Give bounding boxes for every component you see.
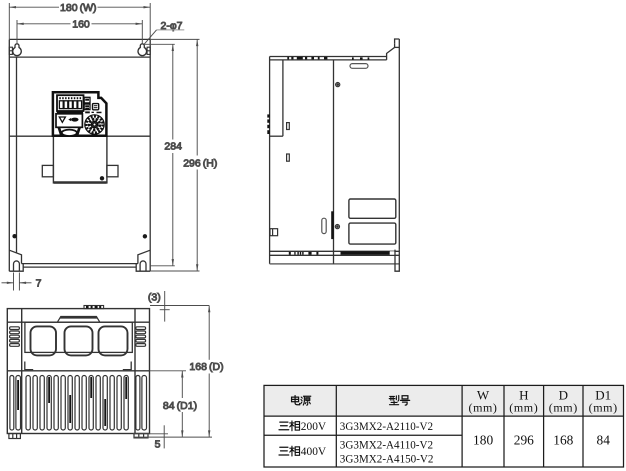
svg-text:7: 7 <box>36 277 42 289</box>
svg-text:5: 5 <box>155 439 161 451</box>
svg-text:284: 284 <box>164 141 182 153</box>
svg-text:(mm): (mm) <box>509 400 538 414</box>
svg-text:160: 160 <box>72 18 90 30</box>
svg-text:84: 84 <box>597 433 611 448</box>
svg-text:(mm): (mm) <box>468 400 497 414</box>
svg-text:(mm): (mm) <box>589 400 618 414</box>
svg-text:84 (D1): 84 (D1) <box>163 400 197 412</box>
svg-text:296 (H): 296 (H) <box>183 158 217 170</box>
svg-text:400V: 400V <box>301 446 327 458</box>
svg-text:200V: 200V <box>301 421 327 433</box>
svg-text:296: 296 <box>514 433 534 448</box>
svg-text:3G3MX2-A2110-V2: 3G3MX2-A2110-V2 <box>340 421 433 433</box>
svg-text:(3): (3) <box>148 292 161 304</box>
svg-text:(mm): (mm) <box>549 400 578 414</box>
svg-text:168: 168 <box>553 433 573 448</box>
svg-text:3G3MX2-A4150-V2: 3G3MX2-A4150-V2 <box>340 453 434 465</box>
svg-text:3G3MX2-A4110-V2: 3G3MX2-A4110-V2 <box>340 440 433 452</box>
svg-text:168 (D): 168 (D) <box>189 361 223 373</box>
svg-text:180: 180 <box>473 433 493 448</box>
svg-text:180 (W): 180 (W) <box>60 2 97 14</box>
